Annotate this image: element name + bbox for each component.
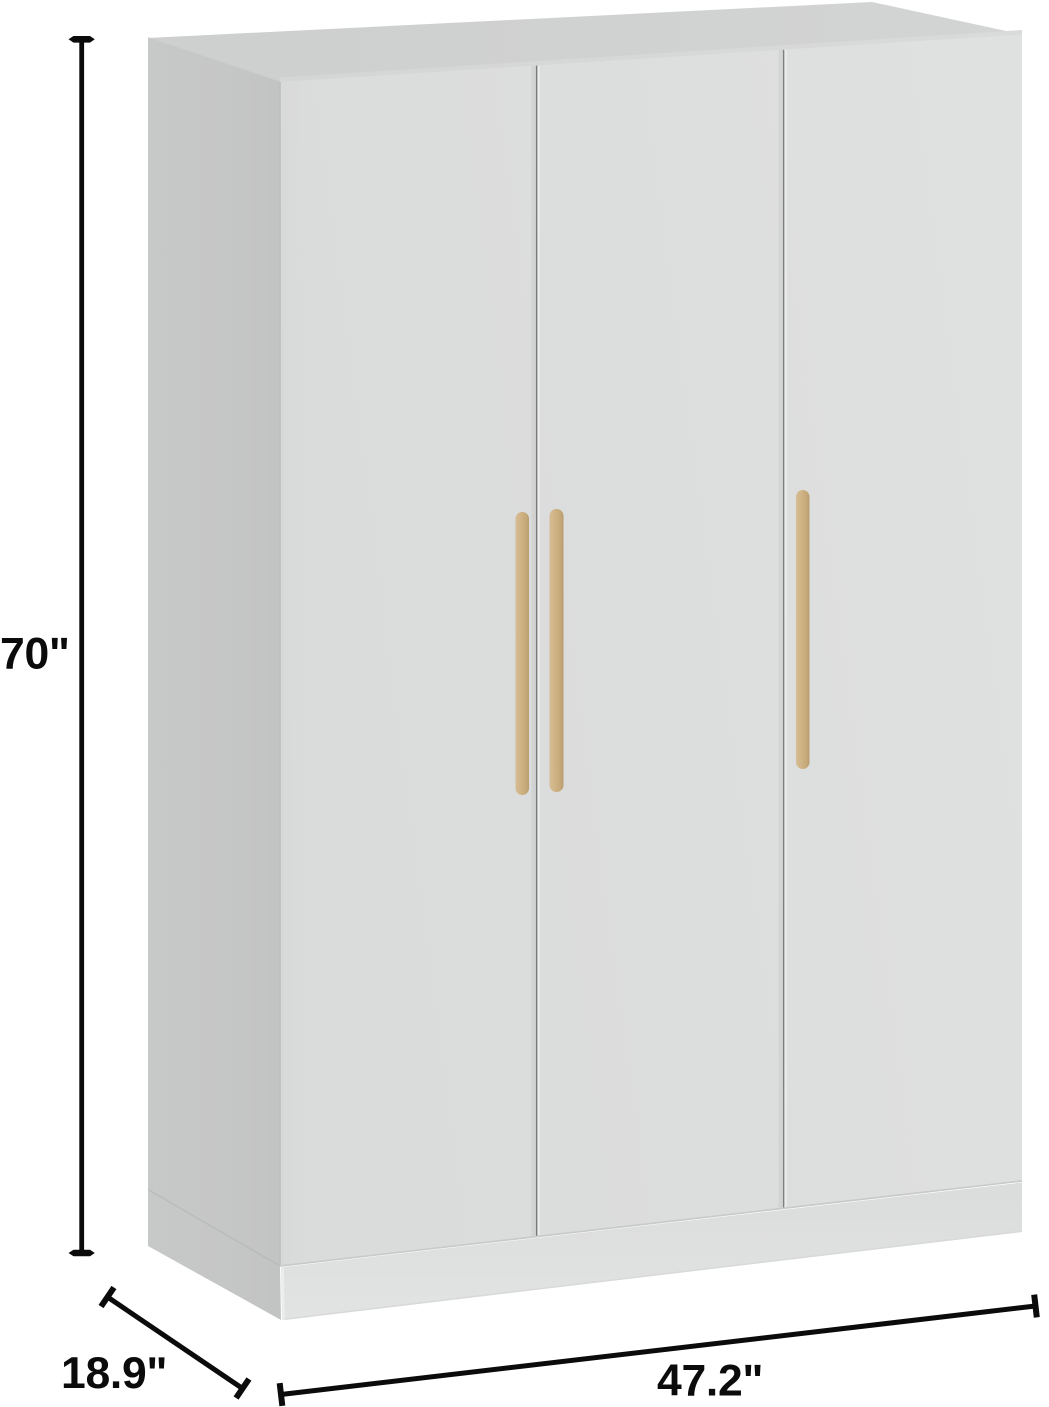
svg-text:18.9": 18.9" bbox=[61, 1349, 167, 1398]
svg-text:70": 70" bbox=[0, 630, 70, 679]
svg-text:47.2": 47.2" bbox=[657, 1357, 763, 1406]
